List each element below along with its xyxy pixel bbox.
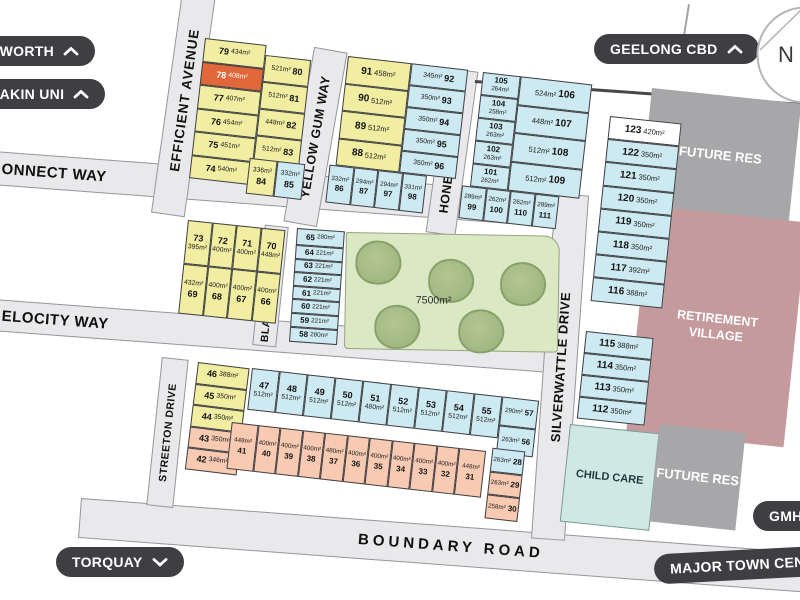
nav-pill-label: GEELONG CBD (610, 41, 718, 57)
lot-number: 118 (612, 240, 629, 252)
lot-area: 350m² (638, 174, 660, 184)
lot-number: 38 (306, 454, 316, 463)
tree-icon (458, 309, 505, 354)
lot-number: 86 (334, 185, 344, 194)
lot-area: 400m² (232, 285, 252, 294)
lot-area: 512m² (420, 410, 440, 419)
tree-icon (355, 240, 402, 285)
lot-number: 62 (303, 276, 312, 285)
lot-number: 82 (286, 121, 297, 131)
lot-area: 400m² (280, 443, 298, 451)
lot-area: 512m² (528, 146, 550, 156)
lot-group-c-col2: 106524m²107448m²108512m²109512m² (508, 76, 593, 198)
lot-number: 67 (236, 294, 247, 304)
lot-98[interactable]: 98331m² (398, 173, 427, 214)
lot-number: 115 (599, 338, 616, 350)
lot-number: 50 (342, 391, 353, 401)
lot-area: 388m² (218, 372, 238, 381)
lot-30[interactable]: 30258m² (485, 495, 520, 522)
nav-pill-geelong-cbd[interactable]: GEELONG CBD (594, 34, 759, 64)
lot-number: 101 (484, 168, 498, 177)
lot-area: 392m² (628, 266, 650, 276)
lot-block-f: 65280m²64221m²63221m²62221m²61221m²60221… (289, 228, 345, 345)
lot-84[interactable]: 84336m² (246, 158, 278, 197)
lot-area: 350m² (216, 393, 236, 402)
lot-number: 97 (383, 190, 393, 199)
lot-area: 448m² (234, 438, 252, 446)
lot-number: 39 (284, 452, 294, 461)
lot-group-h-row2: 41448m²40400m²39400m²38400m²37480m²36400… (226, 422, 486, 498)
lot-number: 54 (453, 403, 464, 413)
lot-number: 66 (260, 297, 271, 307)
lot-number: 122 (622, 147, 640, 159)
lot-area: 258m² (488, 503, 506, 511)
nav-pill-label: MAJOR TOWN CENT (670, 553, 800, 576)
lot-number: 53 (425, 400, 436, 410)
nav-pill-label: PWORTH (0, 43, 54, 59)
lot-area: 350m² (612, 385, 634, 395)
lot-number: 35 (373, 462, 383, 471)
lot-area: 336m² (252, 167, 272, 176)
lot-number: 64 (305, 248, 314, 257)
lot-group-h-stack2: 28263m²29263m²30258m² (485, 448, 526, 522)
lot-85[interactable]: 85332m² (273, 161, 305, 200)
lot-number: 90 (357, 94, 369, 105)
tree-icon (500, 262, 547, 307)
street-label: BOUNDARY ROAD (357, 530, 544, 561)
lot-number: 43 (199, 433, 210, 443)
lot-number: 88 (351, 148, 363, 159)
lot-number: 92 (444, 74, 455, 84)
lot-area: 289m² (464, 194, 482, 202)
lot-area: 512m² (268, 93, 288, 102)
lot-area: 350m² (636, 197, 658, 207)
lot-number: 63 (304, 262, 313, 271)
lot-number: 110 (514, 208, 528, 217)
lot-area: 540m² (217, 166, 237, 175)
lot-number: 117 (610, 263, 627, 275)
lot-area: 451m² (220, 143, 240, 152)
lot-number: 31 (465, 473, 475, 482)
lot-number: 57 (524, 409, 534, 418)
lot-number: 47 (259, 381, 270, 391)
lot-area: 263m² (486, 132, 504, 140)
lot-area: 454m² (223, 119, 243, 128)
lot-number: 99 (467, 203, 477, 212)
lot-area: 480m² (325, 448, 343, 456)
lot-block-d-lower: 115388m²114350m²113350m²112350m² (577, 331, 654, 426)
street-streeton-drive: STREETON DRIVE (146, 357, 188, 508)
lot-area: 280m² (310, 332, 328, 340)
lot-number: 96 (434, 161, 445, 171)
lot-number: 83 (283, 148, 294, 158)
lot-number: 40 (261, 449, 271, 458)
lot-number: 72 (217, 236, 228, 246)
lot-area: 332m² (280, 171, 300, 180)
lot-area: 448m² (462, 464, 480, 472)
lot-number: 68 (211, 292, 222, 302)
lot-number: 75 (208, 140, 219, 150)
lot-number: 44 (201, 412, 212, 422)
lot-number: 102 (486, 145, 500, 154)
lot-area: 408m² (228, 73, 248, 82)
lot-area: 512m² (525, 174, 547, 184)
nav-pill-label: TORQUAY (72, 554, 143, 570)
nav-pill-epworth[interactable]: PWORTH (0, 36, 95, 66)
nav-pill-label: EAKIN UNI (0, 86, 64, 102)
lot-number: 52 (398, 397, 409, 407)
lot-area: 458m² (374, 69, 396, 79)
lot-number: 37 (329, 457, 339, 466)
lot-number: 93 (441, 95, 452, 105)
lot-area: 262m² (480, 178, 498, 186)
lot-number: 28 (513, 458, 523, 467)
lot-number: 65 (306, 233, 315, 242)
lot-area: 512m² (448, 414, 468, 423)
lot-number: 85 (283, 180, 294, 190)
lot-area: 346m² (208, 457, 228, 466)
lot-number: 41 (237, 447, 247, 456)
lot-number: 69 (187, 289, 198, 299)
lot-number: 78 (216, 70, 227, 80)
lot-area: 512m² (336, 401, 356, 410)
lot-area: 512m² (309, 398, 329, 407)
compass-n-label: N (778, 42, 794, 68)
lot-area: 400m² (370, 453, 388, 461)
lot-area: 512m² (281, 395, 301, 404)
lot-area: 388m² (617, 342, 639, 352)
lot-area: 521m² (271, 66, 291, 75)
lot-area: 280m² (317, 235, 335, 243)
lot-number: 109 (548, 176, 566, 188)
lot-number: 107 (554, 119, 572, 131)
lot-area: 290m² (504, 408, 522, 416)
lot-area: 332m² (331, 176, 349, 184)
lot-area: 448m² (531, 117, 553, 127)
lot-area: 221m² (314, 277, 332, 285)
child-care-area: CHILD CARE (560, 424, 660, 531)
lot-area: 388m² (626, 289, 648, 299)
lot-number: 36 (351, 460, 361, 469)
lot-number: 61 (302, 289, 311, 298)
lot-number: 106 (558, 90, 576, 102)
lot-area: 350m² (633, 220, 655, 230)
lot-number: 70 (266, 241, 277, 251)
lot-number: 91 (361, 66, 373, 77)
lot-number: 123 (624, 124, 642, 136)
lot-area: 350m² (610, 407, 632, 417)
lot-area: 263m² (501, 436, 519, 444)
lot-area: 395m² (187, 244, 207, 253)
lot-area: 263m² (493, 457, 511, 465)
lot-area: 400m² (415, 458, 433, 466)
lot-area: 263m² (483, 155, 501, 163)
compass-north-icon: N (756, 6, 800, 104)
lot-number: 98 (407, 193, 417, 202)
lot-area: 221m² (312, 304, 330, 312)
lot-number: 116 (608, 286, 625, 298)
lot-66[interactable]: 66400m² (251, 271, 281, 323)
lot-number: 56 (521, 438, 531, 447)
chevron-up-icon (63, 46, 79, 56)
lot-number: 120 (617, 193, 635, 205)
lot-number: 49 (314, 387, 325, 397)
lot-57[interactable]: 57290m² (499, 397, 539, 430)
nav-pill-gmhba[interactable]: GMHBA (753, 501, 800, 531)
lot-area: 350m² (420, 94, 440, 103)
lot-area: 400m² (348, 451, 366, 459)
lot-area: 420m² (643, 127, 665, 137)
chevron-up-icon (727, 44, 743, 54)
lot-number: 73 (193, 234, 204, 244)
lot-number: 42 (196, 455, 207, 465)
lot-number: 76 (210, 117, 221, 127)
street-label: ONNECT WAY (0, 159, 107, 185)
lot-area: 400m² (236, 249, 256, 258)
lot-area: 350m² (614, 363, 636, 373)
street-label: STREETON DRIVE (156, 383, 178, 483)
lot-area: 448m² (265, 119, 285, 128)
street-label: ELOCITY WAY (0, 306, 109, 333)
lot-area: 263m² (490, 480, 508, 488)
lot-area: 512m² (476, 417, 496, 426)
lot-area: 434m² (230, 49, 250, 58)
lot-area: 400m² (437, 461, 455, 469)
lot-area: 512m² (368, 124, 390, 134)
lot-area: 350m² (413, 160, 433, 169)
lot-number: 48 (286, 384, 297, 394)
lot-area: 400m² (392, 456, 410, 464)
lot-area: 512m² (253, 391, 273, 400)
lot-area: 448m² (260, 252, 280, 261)
lot-area: 400m² (257, 288, 277, 297)
lot-number: 89 (354, 121, 366, 132)
lot-area: 350m² (415, 138, 435, 147)
lot-area: 512m² (392, 407, 412, 416)
lot-area: 350m² (640, 150, 662, 160)
lot-area: 524m² (535, 89, 557, 99)
lot-area: 512m² (364, 151, 386, 161)
park-area-label: 7500m² (416, 294, 452, 307)
lot-number: 84 (256, 177, 267, 187)
lot-area: 350m² (213, 415, 233, 424)
lot-area: 258m² (488, 109, 506, 117)
lot-number: 60 (301, 303, 310, 312)
lot-111[interactable]: 111289m² (531, 194, 559, 230)
lot-number: 45 (204, 391, 215, 401)
lot-area: 294m² (380, 181, 398, 189)
lot-area: 432m² (184, 280, 204, 289)
lot-area: 350m² (211, 436, 231, 445)
lot-area: 407m² (225, 96, 245, 105)
lot-group-a-pair: 84336m²85332m² (246, 158, 306, 200)
lot-number: 119 (615, 217, 632, 229)
lot-number: 113 (594, 382, 611, 394)
park-reserve: 7500m² (344, 232, 560, 353)
lot-number: 29 (510, 481, 520, 490)
tree-icon (374, 305, 421, 350)
lot-number: 112 (592, 404, 609, 416)
lot-area: 350m² (631, 243, 653, 253)
future-res-area-bottom: FUTURE RES (650, 424, 746, 530)
lot-number: 114 (596, 360, 613, 372)
lot-number: 74 (205, 164, 216, 174)
lot-number: 104 (491, 100, 505, 109)
lot-area: 221m² (315, 264, 333, 272)
lot-number: 121 (619, 170, 637, 182)
lot-area: 221m² (316, 250, 334, 258)
lot-area: 221m² (311, 318, 329, 326)
lot-number: 34 (396, 465, 406, 474)
lot-number: 105 (494, 77, 508, 86)
lot-area: 331m² (404, 184, 422, 192)
estate-masterplan-map: ONNECT WAY ELOCITY WAY BOUNDARY ROAD EFF… (0, 0, 800, 600)
lot-number: 100 (489, 205, 503, 214)
lot-group-e-row2: 69432m²68400m²67400m²66400m² (178, 264, 281, 324)
lot-number: 94 (439, 117, 450, 127)
lot-number: 32 (440, 470, 450, 479)
lot-number: 33 (418, 467, 428, 476)
lot-number: 81 (289, 94, 300, 104)
lot-area: 512m² (371, 96, 393, 106)
lot-31[interactable]: 31448m² (454, 448, 486, 498)
lot-number: 46 (206, 369, 217, 379)
lot-area: 400m² (212, 247, 232, 256)
lot-number: 77 (213, 94, 224, 104)
lot-area: 480m² (364, 404, 384, 413)
lot-70[interactable]: 70448m² (256, 228, 285, 274)
chevron-down-icon (152, 557, 168, 567)
lot-area: 400m² (258, 441, 276, 449)
lot-area: 400m² (208, 283, 228, 292)
lot-area: 512m² (262, 146, 282, 155)
lot-number: 59 (300, 316, 309, 325)
lot-area: 400m² (303, 446, 321, 454)
lot-number: 30 (507, 505, 517, 514)
lot-number: 111 (538, 211, 551, 220)
lot-area: 345m² (423, 72, 443, 81)
lot-area: 294m² (355, 179, 373, 187)
nav-pill-torquay[interactable]: TORQUAY (56, 547, 184, 577)
nav-pill-deakin-uni[interactable]: EAKIN UNI (0, 79, 105, 109)
lot-number: 95 (436, 139, 447, 149)
chevron-up-icon (73, 89, 89, 99)
lot-number: 71 (242, 239, 253, 249)
lot-number: 51 (370, 394, 381, 404)
lot-number: 108 (551, 147, 569, 159)
lot-number: 79 (218, 47, 229, 57)
lot-number: 58 (299, 330, 308, 339)
lot-area: 264m² (491, 86, 509, 94)
lot-number: 87 (359, 187, 369, 196)
lot-number: 103 (489, 122, 503, 131)
lot-area: 350m² (418, 116, 438, 125)
lot-area: 221m² (313, 291, 331, 299)
nav-pill-label: GMHBA (769, 508, 800, 524)
lot-number: 55 (481, 406, 492, 416)
lot-number: 80 (292, 67, 303, 77)
